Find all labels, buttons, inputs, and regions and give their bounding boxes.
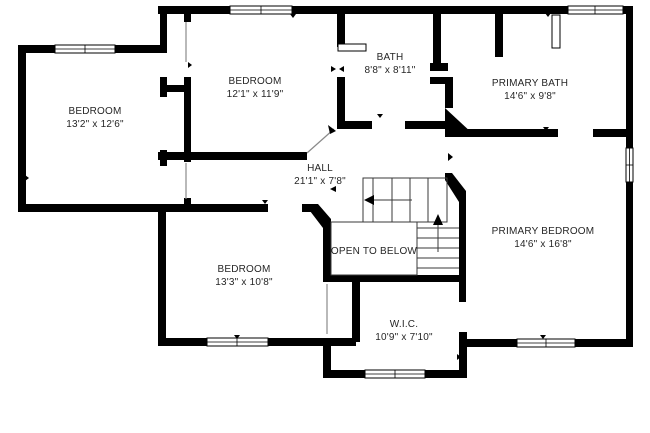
floor-plan-drawing — [0, 0, 650, 433]
room-name: BATH — [365, 51, 416, 64]
room-name: PRIMARY BATH — [492, 77, 568, 90]
wall-bath-bottom-left — [337, 121, 372, 129]
room-dimensions: 8'8" x 8'11" — [365, 64, 416, 77]
annotation-text: OPEN TO BELOW — [331, 245, 417, 258]
wall-bath-right — [433, 6, 441, 63]
door-leaf-primary-bath — [552, 15, 560, 48]
wall-bath-bottom-right — [405, 121, 445, 129]
room-dimensions: 10'9" x 7'10" — [375, 331, 432, 344]
staircase — [331, 178, 459, 275]
room-dimensions: 13'3" x 10'8" — [215, 276, 272, 289]
wall-linen-stub-a — [430, 63, 448, 71]
wall-bedroom3-left — [158, 204, 166, 346]
window-symbol — [568, 6, 623, 14]
wall-closet-left-b — [160, 77, 167, 97]
windows — [55, 6, 633, 378]
room-dimensions: 12'1" x 11'9" — [227, 88, 284, 101]
window-symbol — [230, 6, 292, 14]
wall-bath-left-a — [337, 6, 345, 47]
window-symbol — [626, 148, 633, 182]
wall-hall-east — [445, 84, 453, 108]
wall-wic-left — [352, 282, 360, 342]
wall-bedroom2-left-c — [184, 198, 191, 212]
room-label-hall: HALL 21'1" x 7'8" — [294, 162, 346, 188]
room-name: W.I.C. — [375, 318, 432, 331]
door-marker — [540, 335, 546, 339]
room-label-primary-bath: PRIMARY BATH 14'6" x 9'8" — [492, 77, 568, 103]
room-label-wic: W.I.C. 10'9" x 7'10" — [375, 318, 432, 344]
room-name: BEDROOM — [66, 105, 123, 118]
door-marker — [377, 114, 383, 118]
wall-primary-bedroom-top-left — [445, 129, 558, 137]
room-name: HALL — [294, 162, 346, 175]
wall-closet-divider — [167, 85, 191, 92]
room-label-bedroom-1: BEDROOM 13'2" x 12'6" — [66, 105, 123, 131]
wall-diagonal-stairs — [445, 173, 466, 202]
floor-plan: BEDROOM 13'2" x 12'6" BEDROOM 12'1" x 11… — [0, 0, 650, 433]
door-marker — [290, 14, 296, 18]
room-dimensions: 13'2" x 12'6" — [66, 118, 123, 131]
room-label-bedroom-3: BEDROOM 13'3" x 10'8" — [215, 263, 272, 289]
door-marker — [262, 200, 268, 204]
window-symbol — [55, 45, 115, 53]
wall-stairwell-bottom — [323, 275, 466, 282]
wall-left-exterior — [18, 45, 26, 212]
wall-top-exterior — [158, 6, 633, 14]
stair-direction-arrow-left — [364, 195, 412, 205]
door-marker — [545, 13, 551, 17]
room-label-primary-bedroom: PRIMARY BEDROOM 14'6" x 16'8" — [492, 225, 595, 251]
wall-bedroom2-left-a — [184, 14, 191, 22]
room-name: PRIMARY BEDROOM — [492, 225, 595, 238]
wall-primary-bedroom-top-right — [593, 129, 626, 137]
wall-bedroom1-bottom — [18, 204, 268, 212]
door-marker — [331, 66, 336, 72]
door-marker — [339, 66, 344, 72]
wall-closet-left-a — [160, 6, 167, 53]
room-name: BEDROOM — [227, 75, 284, 88]
wall-linen-stub-b — [430, 77, 453, 84]
wall-primary-bath-partition — [495, 6, 503, 57]
room-label-bath: BATH 8'8" x 8'11" — [365, 51, 416, 77]
stair-direction-arrow-up — [433, 214, 443, 252]
room-dimensions: 21'1" x 7'8" — [294, 175, 346, 188]
wall-bedroom3-right — [323, 222, 331, 282]
window-symbol — [207, 338, 268, 346]
room-label-bedroom-2: BEDROOM 12'1" x 11'9" — [227, 75, 284, 101]
annotation-open-to-below: OPEN TO BELOW — [331, 245, 417, 258]
room-name: BEDROOM — [215, 263, 272, 276]
door-marker — [25, 175, 29, 181]
room-dimensions: 14'6" x 16'8" — [492, 238, 595, 251]
walls — [18, 6, 633, 378]
wall-stairs-right — [459, 198, 466, 302]
door-markers — [25, 13, 551, 360]
room-dimensions: 14'6" x 9'8" — [492, 90, 568, 103]
wall-bedroom2-bottom — [158, 152, 307, 160]
window-symbol — [365, 370, 425, 378]
door-marker — [448, 153, 453, 161]
door-marker — [188, 62, 192, 68]
window-symbol — [517, 339, 575, 347]
door-leaf-bath — [338, 44, 366, 51]
wall-wic-right — [459, 332, 467, 378]
